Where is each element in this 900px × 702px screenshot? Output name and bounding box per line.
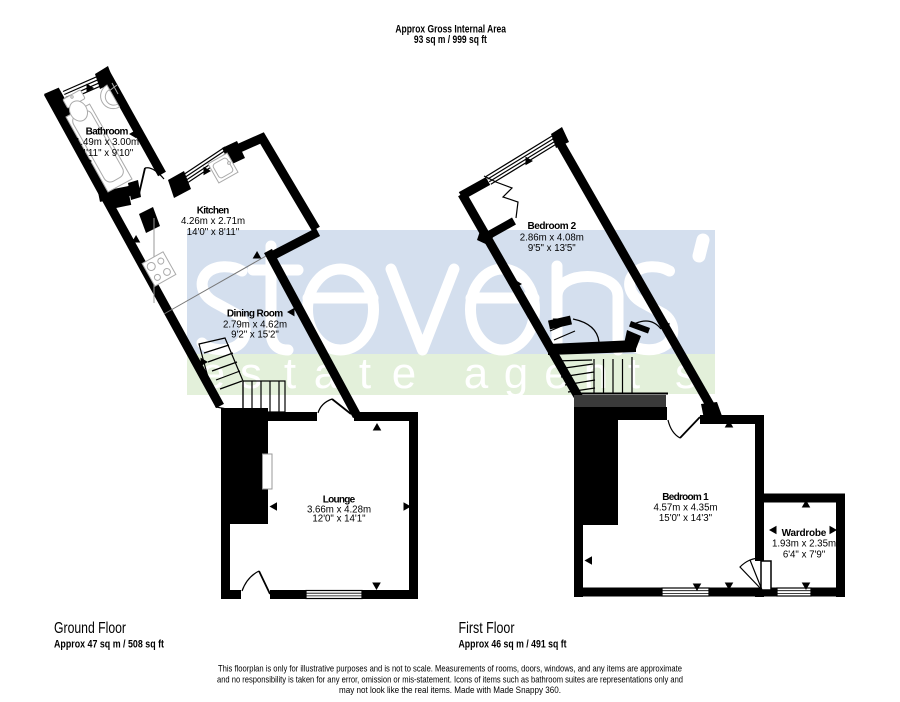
svg-text:1.93m x 2.35m: 1.93m x 2.35m (772, 539, 836, 550)
svg-text:93 sq m / 999 sq ft: 93 sq m / 999 sq ft (414, 34, 487, 46)
svg-text:12'0" x 14'1": 12'0" x 14'1" (312, 514, 366, 525)
svg-text:14'0" x 8'11": 14'0" x 8'11" (187, 227, 240, 238)
svg-text:6'4" x 7'9": 6'4" x 7'9" (783, 549, 826, 560)
svg-text:Bedroom 1: Bedroom 1 (662, 492, 709, 503)
svg-text:4'11" x 9'10": 4'11" x 9'10" (81, 148, 134, 159)
svg-text:1.49m x 3.00m: 1.49m x 3.00m (75, 137, 139, 148)
svg-text:Bedroom 2: Bedroom 2 (527, 221, 576, 232)
svg-text:2.86m x 4.08m: 2.86m x 4.08m (520, 232, 584, 243)
svg-text:This floorplan is only for ill: This floorplan is only for illustrative … (218, 663, 682, 674)
svg-text:g: g (504, 349, 528, 398)
svg-text:e: e (392, 349, 416, 398)
svg-text:Wardrobe: Wardrobe (782, 528, 827, 539)
svg-text:a: a (464, 349, 489, 398)
svg-text:Kitchen: Kitchen (197, 205, 230, 216)
svg-text:9'2" x 15'2": 9'2" x 15'2" (231, 330, 279, 341)
svg-text:t: t (359, 349, 371, 398)
svg-text:First Floor: First Floor (459, 620, 515, 637)
svg-text:Ground Floor: Ground Floor (54, 620, 126, 637)
svg-text:may not look like the real ite: may not look like the real items. Made w… (339, 684, 561, 695)
svg-text:t: t (284, 349, 296, 398)
svg-text:15'0" x 14'3": 15'0" x 14'3" (659, 513, 713, 524)
svg-text:t: t (628, 349, 640, 398)
svg-text:and no responsibility is taken: and no responsibility is taken for any e… (217, 673, 683, 684)
svg-text:4.26m x 2.71m: 4.26m x 2.71m (181, 216, 245, 227)
svg-text:Dining Room: Dining Room (227, 309, 283, 320)
svg-text:9'5" x 13'5": 9'5" x 13'5" (528, 243, 576, 254)
svg-text:Approx 46 sq m / 491 sq ft: Approx 46 sq m / 491 sq ft (459, 639, 567, 651)
svg-text:Approx 47 sq m / 508 sq ft: Approx 47 sq m / 508 sq ft (54, 639, 164, 651)
